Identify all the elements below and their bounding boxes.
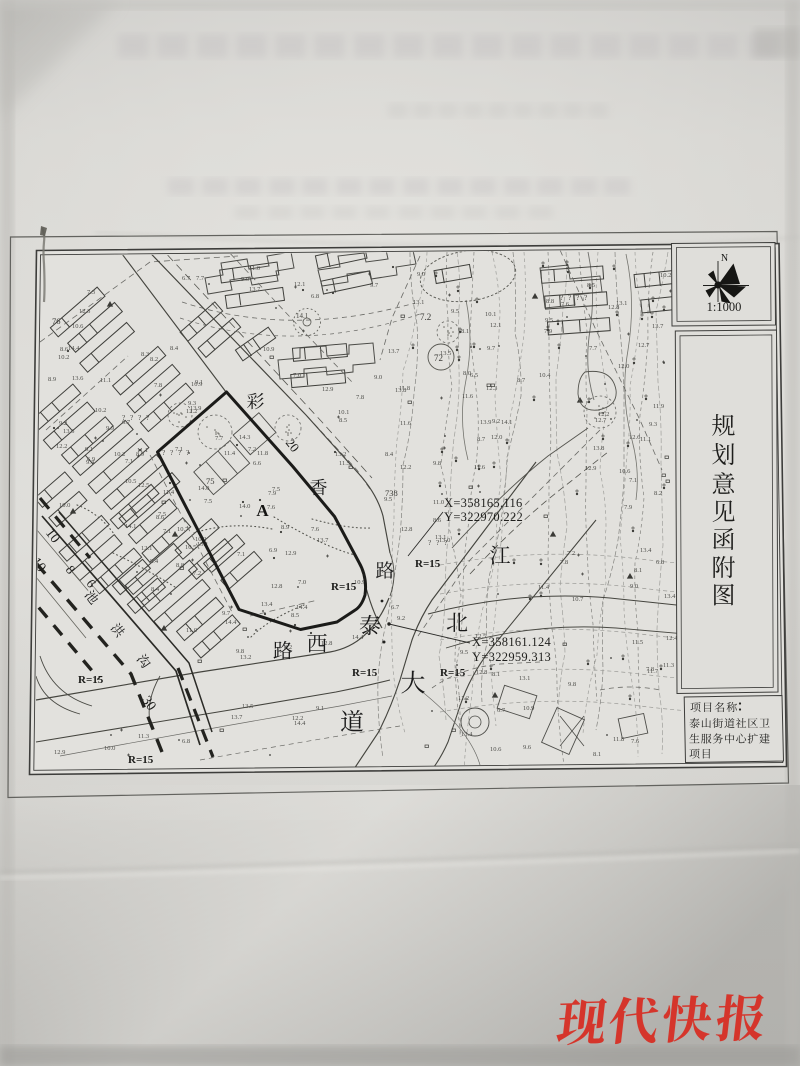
svg-text:12.9: 12.9 xyxy=(285,550,296,557)
svg-text:14.4: 14.4 xyxy=(294,720,306,727)
svg-text:8.6: 8.6 xyxy=(60,346,69,353)
svg-text:9.2: 9.2 xyxy=(492,418,500,425)
svg-text:8.8: 8.8 xyxy=(546,298,554,305)
svg-text:10.6: 10.6 xyxy=(490,746,502,753)
svg-text:7.6: 7.6 xyxy=(311,526,320,533)
svg-text:7.9: 7.9 xyxy=(624,504,632,511)
svg-text:14.4: 14.4 xyxy=(225,619,237,626)
svg-text:9.0: 9.0 xyxy=(374,374,382,381)
svg-text:7.1: 7.1 xyxy=(175,446,183,453)
svg-text:10.0: 10.0 xyxy=(104,745,115,752)
svg-text:13.1: 13.1 xyxy=(413,299,424,306)
svg-text:9.1: 9.1 xyxy=(195,379,203,386)
svg-text:11.8: 11.8 xyxy=(257,450,268,457)
svg-text:14.3: 14.3 xyxy=(239,434,250,441)
svg-text:13.7: 13.7 xyxy=(317,537,329,544)
svg-text:R=15: R=15 xyxy=(415,558,441,570)
svg-text:7.0: 7.0 xyxy=(298,579,306,586)
svg-text:12.1: 12.1 xyxy=(141,545,152,552)
svg-text:8.5: 8.5 xyxy=(291,612,299,619)
svg-text:10.5: 10.5 xyxy=(125,478,136,485)
svg-text:9.5: 9.5 xyxy=(545,317,553,324)
svg-text:7.5: 7.5 xyxy=(204,498,212,505)
svg-text:10.5: 10.5 xyxy=(185,544,196,551)
svg-text:9.2: 9.2 xyxy=(397,615,405,622)
svg-text:7.8: 7.8 xyxy=(646,666,654,673)
svg-text:9.9: 9.9 xyxy=(106,425,114,432)
svg-text:12.9: 12.9 xyxy=(322,386,333,393)
svg-text:8.7: 8.7 xyxy=(477,436,486,443)
svg-text:6.7: 6.7 xyxy=(497,707,506,714)
svg-text:12.8: 12.8 xyxy=(608,304,619,311)
svg-text:11.8: 11.8 xyxy=(613,736,624,743)
svg-text:10.1: 10.1 xyxy=(485,311,496,318)
svg-text:7.1: 7.1 xyxy=(629,477,637,484)
svg-text:8.4: 8.4 xyxy=(385,451,394,458)
svg-text:11.2: 11.2 xyxy=(458,695,469,702)
svg-text:12.8: 12.8 xyxy=(401,526,412,533)
svg-text:10.7: 10.7 xyxy=(572,596,584,603)
svg-text:9.5: 9.5 xyxy=(384,496,392,503)
svg-text:9.1: 9.1 xyxy=(85,446,93,453)
svg-text:8.5: 8.5 xyxy=(339,417,347,424)
svg-text:8.3: 8.3 xyxy=(141,351,149,358)
svg-text:11.3: 11.3 xyxy=(138,733,149,740)
svg-text:10.1: 10.1 xyxy=(338,409,349,416)
svg-text:8.1: 8.1 xyxy=(634,567,642,574)
svg-text:R=15: R=15 xyxy=(331,581,357,593)
svg-text:R=15: R=15 xyxy=(78,674,104,686)
svg-text:6.9: 6.9 xyxy=(87,456,95,463)
svg-text:14.1: 14.1 xyxy=(501,419,512,426)
svg-text:10.2: 10.2 xyxy=(95,407,106,414)
svg-text:X=358165.116: X=358165.116 xyxy=(444,496,523,510)
svg-text:9.2: 9.2 xyxy=(59,420,67,427)
svg-text:11.6: 11.6 xyxy=(474,464,486,471)
svg-text:7.1: 7.1 xyxy=(237,551,245,558)
svg-text:11.4: 11.4 xyxy=(224,450,236,457)
svg-text:10.2: 10.2 xyxy=(660,272,671,279)
svg-text:10.2: 10.2 xyxy=(58,354,69,361)
svg-text:11.1: 11.1 xyxy=(640,436,651,443)
svg-text:11.1: 11.1 xyxy=(100,377,111,384)
svg-text:14.1: 14.1 xyxy=(296,312,309,320)
svg-text:7.2: 7.2 xyxy=(193,570,201,577)
svg-text:7.1: 7.1 xyxy=(163,528,171,535)
svg-text:9.7: 9.7 xyxy=(370,282,379,289)
svg-text:14.4: 14.4 xyxy=(352,634,364,641)
svg-text:13.1: 13.1 xyxy=(519,675,530,682)
svg-text:13.5: 13.5 xyxy=(242,703,253,710)
svg-text:9.0: 9.0 xyxy=(241,276,249,283)
svg-text:7.8: 7.8 xyxy=(560,559,568,566)
svg-text:8.1: 8.1 xyxy=(492,671,500,678)
svg-text:14.0: 14.0 xyxy=(239,503,250,510)
svg-text:9.5: 9.5 xyxy=(451,308,459,315)
svg-text:12.2: 12.2 xyxy=(400,464,411,471)
svg-text:10.4: 10.4 xyxy=(539,372,551,379)
svg-text:11.0: 11.0 xyxy=(433,499,444,506)
svg-text:R=15: R=15 xyxy=(440,667,466,679)
svg-text:6.6: 6.6 xyxy=(253,460,262,467)
svg-text:9.3: 9.3 xyxy=(649,421,657,428)
svg-text:13.4: 13.4 xyxy=(664,593,676,600)
svg-text:12.8: 12.8 xyxy=(476,669,487,676)
svg-text:9.5: 9.5 xyxy=(460,649,468,656)
svg-text:8.2: 8.2 xyxy=(654,490,662,497)
svg-text:8.4: 8.4 xyxy=(151,586,160,593)
svg-text:11.4: 11.4 xyxy=(538,584,550,591)
svg-text:7.8: 7.8 xyxy=(356,394,364,401)
svg-text:13.7: 13.7 xyxy=(652,323,664,330)
svg-text:7.2: 7.2 xyxy=(567,550,575,557)
svg-text:13.1: 13.1 xyxy=(435,534,446,541)
svg-text:13.2: 13.2 xyxy=(335,451,346,458)
svg-text:11.0: 11.0 xyxy=(249,265,260,272)
svg-text:11.8: 11.8 xyxy=(399,385,410,392)
svg-text:11.3: 11.3 xyxy=(663,662,674,669)
svg-text:7.2: 7.2 xyxy=(420,312,431,322)
svg-text:13.6: 13.6 xyxy=(72,375,84,382)
svg-text:7.7: 7.7 xyxy=(215,435,224,442)
svg-text:R=15: R=15 xyxy=(352,667,378,679)
svg-text:13.4: 13.4 xyxy=(640,547,652,554)
svg-text:12.0: 12.0 xyxy=(491,434,502,441)
svg-text:11.9: 11.9 xyxy=(653,403,664,410)
svg-text:Y=322959.313: Y=322959.313 xyxy=(472,650,551,664)
svg-text:10.6: 10.6 xyxy=(619,468,631,475)
svg-text:12.1: 12.1 xyxy=(490,322,501,329)
svg-text:7.9: 7.9 xyxy=(544,328,552,335)
svg-text:7.6: 7.6 xyxy=(631,738,640,745)
svg-text:12.3: 12.3 xyxy=(486,385,497,392)
svg-text:6.8: 6.8 xyxy=(656,559,664,566)
svg-text:7.8: 7.8 xyxy=(154,382,162,389)
svg-text:13.4: 13.4 xyxy=(461,731,473,738)
svg-text:11.6: 11.6 xyxy=(462,393,474,400)
svg-text:10.9: 10.9 xyxy=(523,705,534,712)
svg-text:13.9: 13.9 xyxy=(480,419,491,426)
svg-text:1:1000: 1:1000 xyxy=(707,300,742,314)
svg-text:12.0: 12.0 xyxy=(618,363,629,370)
svg-text:10.0: 10.0 xyxy=(59,502,70,509)
svg-text:13.7: 13.7 xyxy=(388,348,400,355)
svg-text:12.9: 12.9 xyxy=(585,465,596,472)
svg-text:7.0: 7.0 xyxy=(293,372,301,379)
svg-text:Y=322970.222: Y=322970.222 xyxy=(444,510,523,524)
svg-text:7.6: 7.6 xyxy=(561,301,570,308)
svg-text:8.7: 8.7 xyxy=(517,377,526,384)
svg-text:10.6: 10.6 xyxy=(72,323,84,330)
svg-text:7.9: 7.9 xyxy=(268,490,276,497)
svg-text:12.3: 12.3 xyxy=(79,308,90,315)
svg-text:8.1: 8.1 xyxy=(461,328,469,335)
svg-text:A: A xyxy=(256,501,269,520)
svg-text:10.9: 10.9 xyxy=(263,346,274,353)
svg-text:13.6: 13.6 xyxy=(63,428,75,435)
svg-text:9.0: 9.0 xyxy=(630,583,638,590)
svg-text:76: 76 xyxy=(52,316,61,326)
svg-text:14.1: 14.1 xyxy=(125,523,136,530)
svg-text:7.1: 7.1 xyxy=(125,458,133,465)
svg-text:14.0: 14.0 xyxy=(198,485,209,492)
svg-text:11.5: 11.5 xyxy=(632,639,643,646)
svg-text:13.7: 13.7 xyxy=(231,714,243,721)
svg-text:6.7: 6.7 xyxy=(182,275,191,282)
svg-text:6.9: 6.9 xyxy=(269,547,277,554)
svg-text:13.2: 13.2 xyxy=(240,654,251,661)
svg-text:6.7: 6.7 xyxy=(391,604,400,611)
svg-text:8.4: 8.4 xyxy=(170,345,179,352)
svg-text:8.1: 8.1 xyxy=(593,751,601,758)
svg-text:N: N xyxy=(721,253,728,264)
svg-text:6.7: 6.7 xyxy=(122,419,131,426)
svg-text:8.9: 8.9 xyxy=(48,376,56,383)
svg-text:11.0: 11.0 xyxy=(186,627,197,634)
svg-text:12.9: 12.9 xyxy=(54,749,65,756)
svg-text:13.7: 13.7 xyxy=(249,286,261,293)
svg-text:8.0: 8.0 xyxy=(463,370,471,377)
svg-text:11.4: 11.4 xyxy=(163,489,175,496)
svg-text:12.2: 12.2 xyxy=(598,411,609,418)
svg-text:X=358161.124: X=358161.124 xyxy=(472,635,552,649)
svg-text:7.7: 7.7 xyxy=(589,345,598,352)
svg-text:9.8: 9.8 xyxy=(433,460,441,467)
svg-text:13.5: 13.5 xyxy=(440,350,451,357)
svg-text:8.9: 8.9 xyxy=(136,451,144,458)
svg-text:12.8: 12.8 xyxy=(271,583,282,590)
svg-text:8.9: 8.9 xyxy=(281,524,289,531)
svg-text:9.7: 9.7 xyxy=(487,345,496,352)
svg-text:7.2: 7.2 xyxy=(248,446,256,453)
svg-text:10.7: 10.7 xyxy=(177,526,189,533)
svg-text:12.7: 12.7 xyxy=(638,342,650,349)
svg-text:6.8: 6.8 xyxy=(182,738,190,745)
svg-text:12.2: 12.2 xyxy=(56,443,67,450)
svg-text:8.2: 8.2 xyxy=(150,356,158,363)
svg-text:11.5: 11.5 xyxy=(339,460,350,467)
svg-text:13.4: 13.4 xyxy=(261,601,273,608)
svg-text:7.3: 7.3 xyxy=(87,289,95,296)
svg-text:12.7: 12.7 xyxy=(595,417,607,424)
svg-text:7.7: 7.7 xyxy=(196,275,205,282)
svg-text:9.6: 9.6 xyxy=(523,744,532,751)
svg-text:6.5: 6.5 xyxy=(470,372,478,379)
svg-text:8.4: 8.4 xyxy=(150,558,159,565)
svg-text:9.7: 9.7 xyxy=(222,610,231,617)
svg-text:6.8: 6.8 xyxy=(311,293,319,300)
svg-text:12.5: 12.5 xyxy=(138,482,149,489)
svg-text:9.0: 9.0 xyxy=(417,271,425,278)
svg-text:14.4: 14.4 xyxy=(296,604,308,611)
svg-text:R=15: R=15 xyxy=(128,754,154,766)
svg-text:10.2: 10.2 xyxy=(114,451,125,458)
svg-text:9.3: 9.3 xyxy=(188,400,196,407)
svg-text:9.1: 9.1 xyxy=(316,705,324,712)
svg-text:8.5: 8.5 xyxy=(587,282,595,289)
svg-text:11.6: 11.6 xyxy=(400,420,412,427)
svg-text:9.8: 9.8 xyxy=(568,681,576,688)
svg-text:13.8: 13.8 xyxy=(593,445,604,452)
svg-text:7.5: 7.5 xyxy=(158,511,166,518)
svg-text:14.4: 14.4 xyxy=(68,345,80,352)
